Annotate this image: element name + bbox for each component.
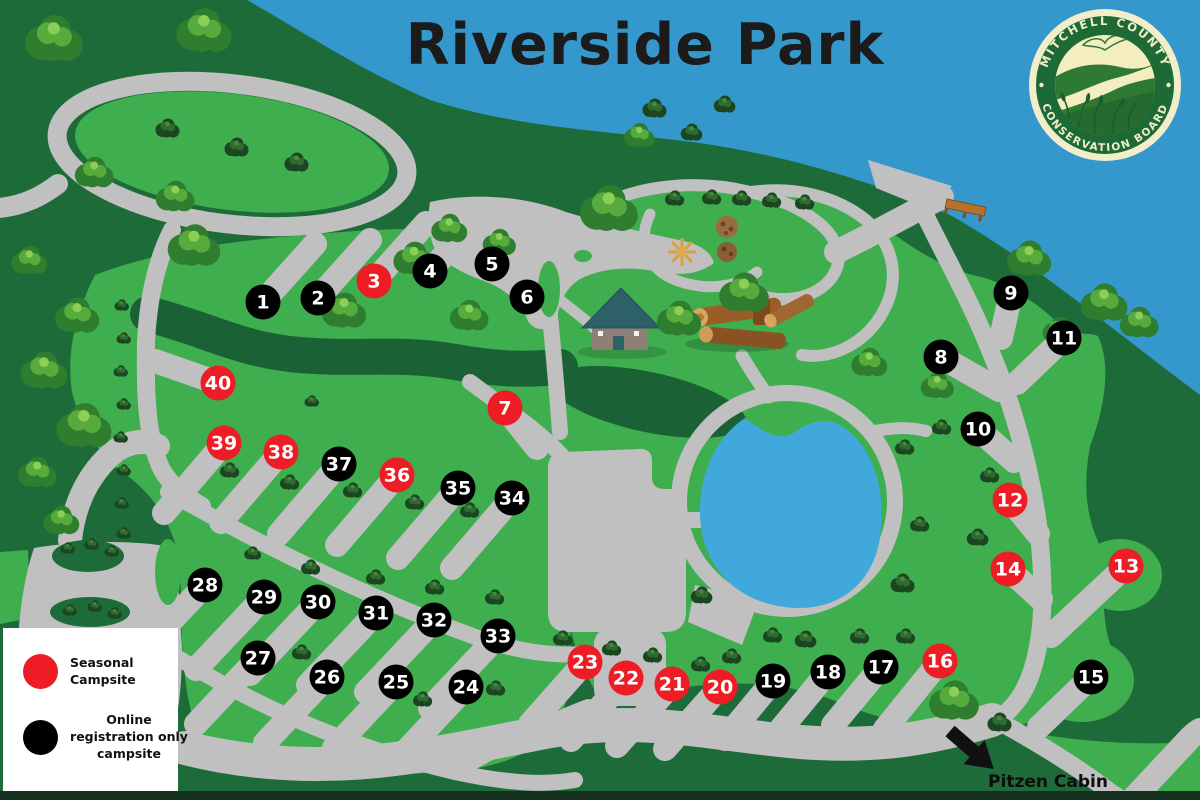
campsite-number: 13 bbox=[1113, 556, 1139, 578]
campsite-number: 25 bbox=[383, 672, 409, 694]
campsite-number: 9 bbox=[1004, 283, 1017, 305]
campsite-number: 36 bbox=[384, 465, 410, 487]
campsite-marker-39: 39 bbox=[207, 426, 242, 461]
campsite-number: 34 bbox=[499, 488, 525, 510]
campsite-number: 2 bbox=[311, 288, 324, 310]
legend: Seasonal Campsite Online registration on… bbox=[3, 628, 178, 791]
pitzen-cabin-label: Pitzen Cabin bbox=[988, 772, 1108, 792]
campsite-number: 16 bbox=[927, 651, 953, 673]
campsite-marker-9: 9 bbox=[994, 276, 1029, 311]
campsite-marker-28: 28 bbox=[188, 568, 223, 603]
campsite-marker-29: 29 bbox=[247, 580, 282, 615]
campsite-number: 7 bbox=[498, 398, 511, 420]
campsite-marker-18: 18 bbox=[811, 655, 846, 690]
legend-item-seasonal: Seasonal Campsite bbox=[3, 654, 188, 689]
campsite-number: 33 bbox=[485, 626, 511, 648]
campsite-marker-34: 34 bbox=[495, 481, 530, 516]
logo-dot-right bbox=[1166, 83, 1170, 87]
pond bbox=[700, 418, 882, 608]
campsite-number: 21 bbox=[659, 674, 685, 696]
campsite-number: 24 bbox=[453, 677, 479, 699]
campsite-number: 35 bbox=[445, 478, 471, 500]
campsite-marker-8: 8 bbox=[924, 340, 959, 375]
campsite-number: 30 bbox=[305, 592, 331, 614]
campsite-number: 14 bbox=[995, 559, 1021, 581]
campsite-number: 11 bbox=[1051, 328, 1077, 350]
campsite-marker-32: 32 bbox=[417, 603, 452, 638]
campsite-marker-3: 3 bbox=[357, 264, 392, 299]
legend-item-online: Online registration only campsite bbox=[3, 712, 188, 763]
campsite-marker-31: 31 bbox=[359, 596, 394, 631]
campsite-marker-30: 30 bbox=[301, 585, 336, 620]
campsite-number: 18 bbox=[815, 662, 841, 684]
campsite-marker-4: 4 bbox=[413, 254, 448, 289]
campsite-marker-36: 36 bbox=[380, 458, 415, 493]
seasonal-campsite-swatch bbox=[23, 654, 58, 689]
campsite-marker-38: 38 bbox=[264, 435, 299, 470]
campsite-number: 17 bbox=[868, 657, 894, 679]
campsite-number: 6 bbox=[520, 287, 533, 309]
campsite-number: 31 bbox=[363, 603, 389, 625]
campsite-marker-22: 22 bbox=[609, 661, 644, 696]
campsite-number: 10 bbox=[965, 419, 991, 441]
campsite-marker-25: 25 bbox=[379, 665, 414, 700]
campsite-marker-7: 7 bbox=[488, 391, 523, 426]
campsite-number: 12 bbox=[997, 490, 1023, 512]
campsite-number: 28 bbox=[192, 575, 218, 597]
online-campsite-label: Online registration only campsite bbox=[70, 712, 188, 763]
conservation-board-logo: MITCHELL COUNTY CONSERVATION BOARD bbox=[1025, 5, 1185, 165]
park-title: Riverside Park bbox=[406, 12, 885, 78]
campsite-marker-19: 19 bbox=[756, 664, 791, 699]
campsite-marker-24: 24 bbox=[449, 670, 484, 705]
campsite-marker-26: 26 bbox=[310, 660, 345, 695]
campsite-marker-17: 17 bbox=[864, 650, 899, 685]
campsite-number: 26 bbox=[314, 667, 340, 689]
campsite-number: 37 bbox=[326, 454, 352, 476]
map-bottom-edge bbox=[0, 791, 1200, 800]
campsite-number: 3 bbox=[367, 271, 380, 293]
seasonal-campsite-label: Seasonal Campsite bbox=[70, 655, 188, 689]
campsite-number: 39 bbox=[211, 433, 237, 455]
campsite-marker-35: 35 bbox=[441, 471, 476, 506]
campsite-number: 22 bbox=[613, 668, 639, 690]
campsite-marker-37: 37 bbox=[322, 447, 357, 482]
campsite-number: 1 bbox=[256, 292, 269, 314]
campsite-marker-20: 20 bbox=[703, 670, 738, 705]
campsite-marker-10: 10 bbox=[961, 412, 996, 447]
campsite-number: 4 bbox=[423, 261, 436, 283]
campsite-marker-2: 2 bbox=[301, 281, 336, 316]
campsite-marker-14: 14 bbox=[991, 552, 1026, 587]
logo-dot-left bbox=[1039, 83, 1043, 87]
campsite-marker-16: 16 bbox=[923, 644, 958, 679]
campsite-marker-21: 21 bbox=[655, 667, 690, 702]
campsite-number: 29 bbox=[251, 587, 277, 609]
campsite-number: 27 bbox=[245, 648, 271, 670]
campsite-number: 38 bbox=[268, 442, 294, 464]
campsite-number: 23 bbox=[572, 652, 598, 674]
riverside-park-map: 1234567891011121314151617181920212223242… bbox=[0, 0, 1200, 800]
campsite-number: 15 bbox=[1078, 667, 1104, 689]
campsite-number: 8 bbox=[934, 347, 947, 369]
campsite-marker-33: 33 bbox=[481, 619, 516, 654]
campsite-marker-5: 5 bbox=[475, 247, 510, 282]
campsite-marker-11: 11 bbox=[1047, 321, 1082, 356]
campsite-marker-15: 15 bbox=[1074, 660, 1109, 695]
campsite-marker-23: 23 bbox=[568, 645, 603, 680]
campsite-marker-13: 13 bbox=[1109, 549, 1144, 584]
campsite-marker-6: 6 bbox=[510, 280, 545, 315]
campsite-marker-1: 1 bbox=[246, 285, 281, 320]
online-campsite-swatch bbox=[23, 720, 58, 755]
campsite-number: 20 bbox=[707, 677, 733, 699]
campsite-marker-27: 27 bbox=[241, 641, 276, 676]
campsite-number: 40 bbox=[205, 373, 231, 395]
campsite-number: 5 bbox=[485, 254, 498, 276]
campsite-number: 32 bbox=[421, 610, 447, 632]
campsite-marker-40: 40 bbox=[201, 366, 236, 401]
campsite-number: 19 bbox=[760, 671, 786, 693]
campsite-marker-12: 12 bbox=[993, 483, 1028, 518]
